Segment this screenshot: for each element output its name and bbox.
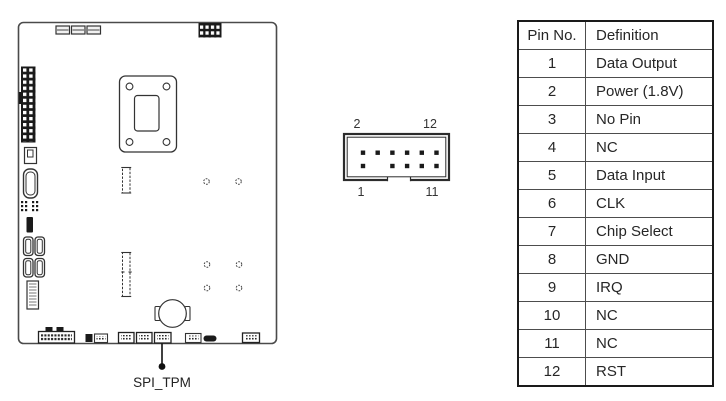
table-row: 10 NC	[518, 302, 713, 330]
pin-no-cell: 2	[518, 78, 586, 106]
pin-no-header: Pin No.	[518, 21, 586, 50]
table-row: 11 NC	[518, 330, 713, 358]
definition-cell: Chip Select	[586, 218, 714, 246]
definition-cell: Data Output	[586, 50, 714, 78]
definition-cell: CLK	[586, 190, 714, 218]
pin12-label: 12	[423, 117, 437, 131]
table-row: 1 Data Output	[518, 50, 713, 78]
pin-no-cell: 11	[518, 330, 586, 358]
pin-definition-table: Pin No. Definition 1 Data Output 2 Power…	[517, 20, 714, 387]
callout-dot	[159, 363, 166, 370]
small-header	[25, 148, 37, 164]
table-row: 3 No Pin	[518, 106, 713, 134]
definition-cell: IRQ	[586, 274, 714, 302]
pin2-label: 2	[354, 117, 361, 131]
definition-cell: Data Input	[586, 162, 714, 190]
motherboard-diagram: SPI_TPM	[0, 0, 310, 401]
header-outer-box	[344, 134, 449, 180]
pin11-label: 11	[426, 185, 439, 199]
page: SPI_TPM 2 12 1 11	[0, 0, 726, 401]
table-row: 8 GND	[518, 246, 713, 274]
table-row: 12 RST	[518, 358, 713, 387]
definition-cell: NC	[586, 330, 714, 358]
bottom-right-header	[243, 333, 260, 343]
atx-24pin-connector	[19, 67, 36, 143]
spi-tpm-header	[155, 333, 172, 344]
usb-header	[86, 334, 108, 343]
table-row: 7 Chip Select	[518, 218, 713, 246]
spi-tpm-label: SPI_TPM	[133, 375, 191, 390]
definition-header: Definition	[586, 21, 714, 50]
definition-cell: NC	[586, 302, 714, 330]
pin-no-cell: 1	[518, 50, 586, 78]
definition-cell: RST	[586, 358, 714, 387]
ribbon-header	[27, 281, 39, 309]
table-header-row: Pin No. Definition	[518, 21, 713, 50]
pin-no-cell: 8	[518, 246, 586, 274]
definition-cell: No Pin	[586, 106, 714, 134]
fan-headers	[56, 26, 101, 34]
pin-no-cell: 6	[518, 190, 586, 218]
table-row: 5 Data Input	[518, 162, 713, 190]
pin-header-drawing: 2 12 1 11	[334, 110, 460, 202]
atx-12v-connector	[199, 23, 222, 38]
pin-no-cell: 3	[518, 106, 586, 134]
definition-cell: Power (1.8V)	[586, 78, 714, 106]
pin-no-cell: 10	[518, 302, 586, 330]
pin-no-cell: 4	[518, 134, 586, 162]
table-row: 9 IRQ	[518, 274, 713, 302]
table-row: 4 NC	[518, 134, 713, 162]
definition-cell: NC	[586, 134, 714, 162]
pin-no-cell: 9	[518, 274, 586, 302]
table-row: 6 CLK	[518, 190, 713, 218]
hdmi-port	[24, 169, 38, 198]
board-outline	[19, 23, 277, 344]
cpu-socket	[120, 76, 177, 152]
definition-cell: GND	[586, 246, 714, 274]
pin-no-cell: 7	[518, 218, 586, 246]
pin-no-cell: 12	[518, 358, 586, 387]
pin-header-closeup: 2 12 1 11	[334, 110, 460, 202]
pin1-label: 1	[358, 185, 365, 199]
vertical-connector	[27, 217, 34, 233]
pin-no-cell: 5	[518, 162, 586, 190]
table-row: 2 Power (1.8V)	[518, 78, 713, 106]
